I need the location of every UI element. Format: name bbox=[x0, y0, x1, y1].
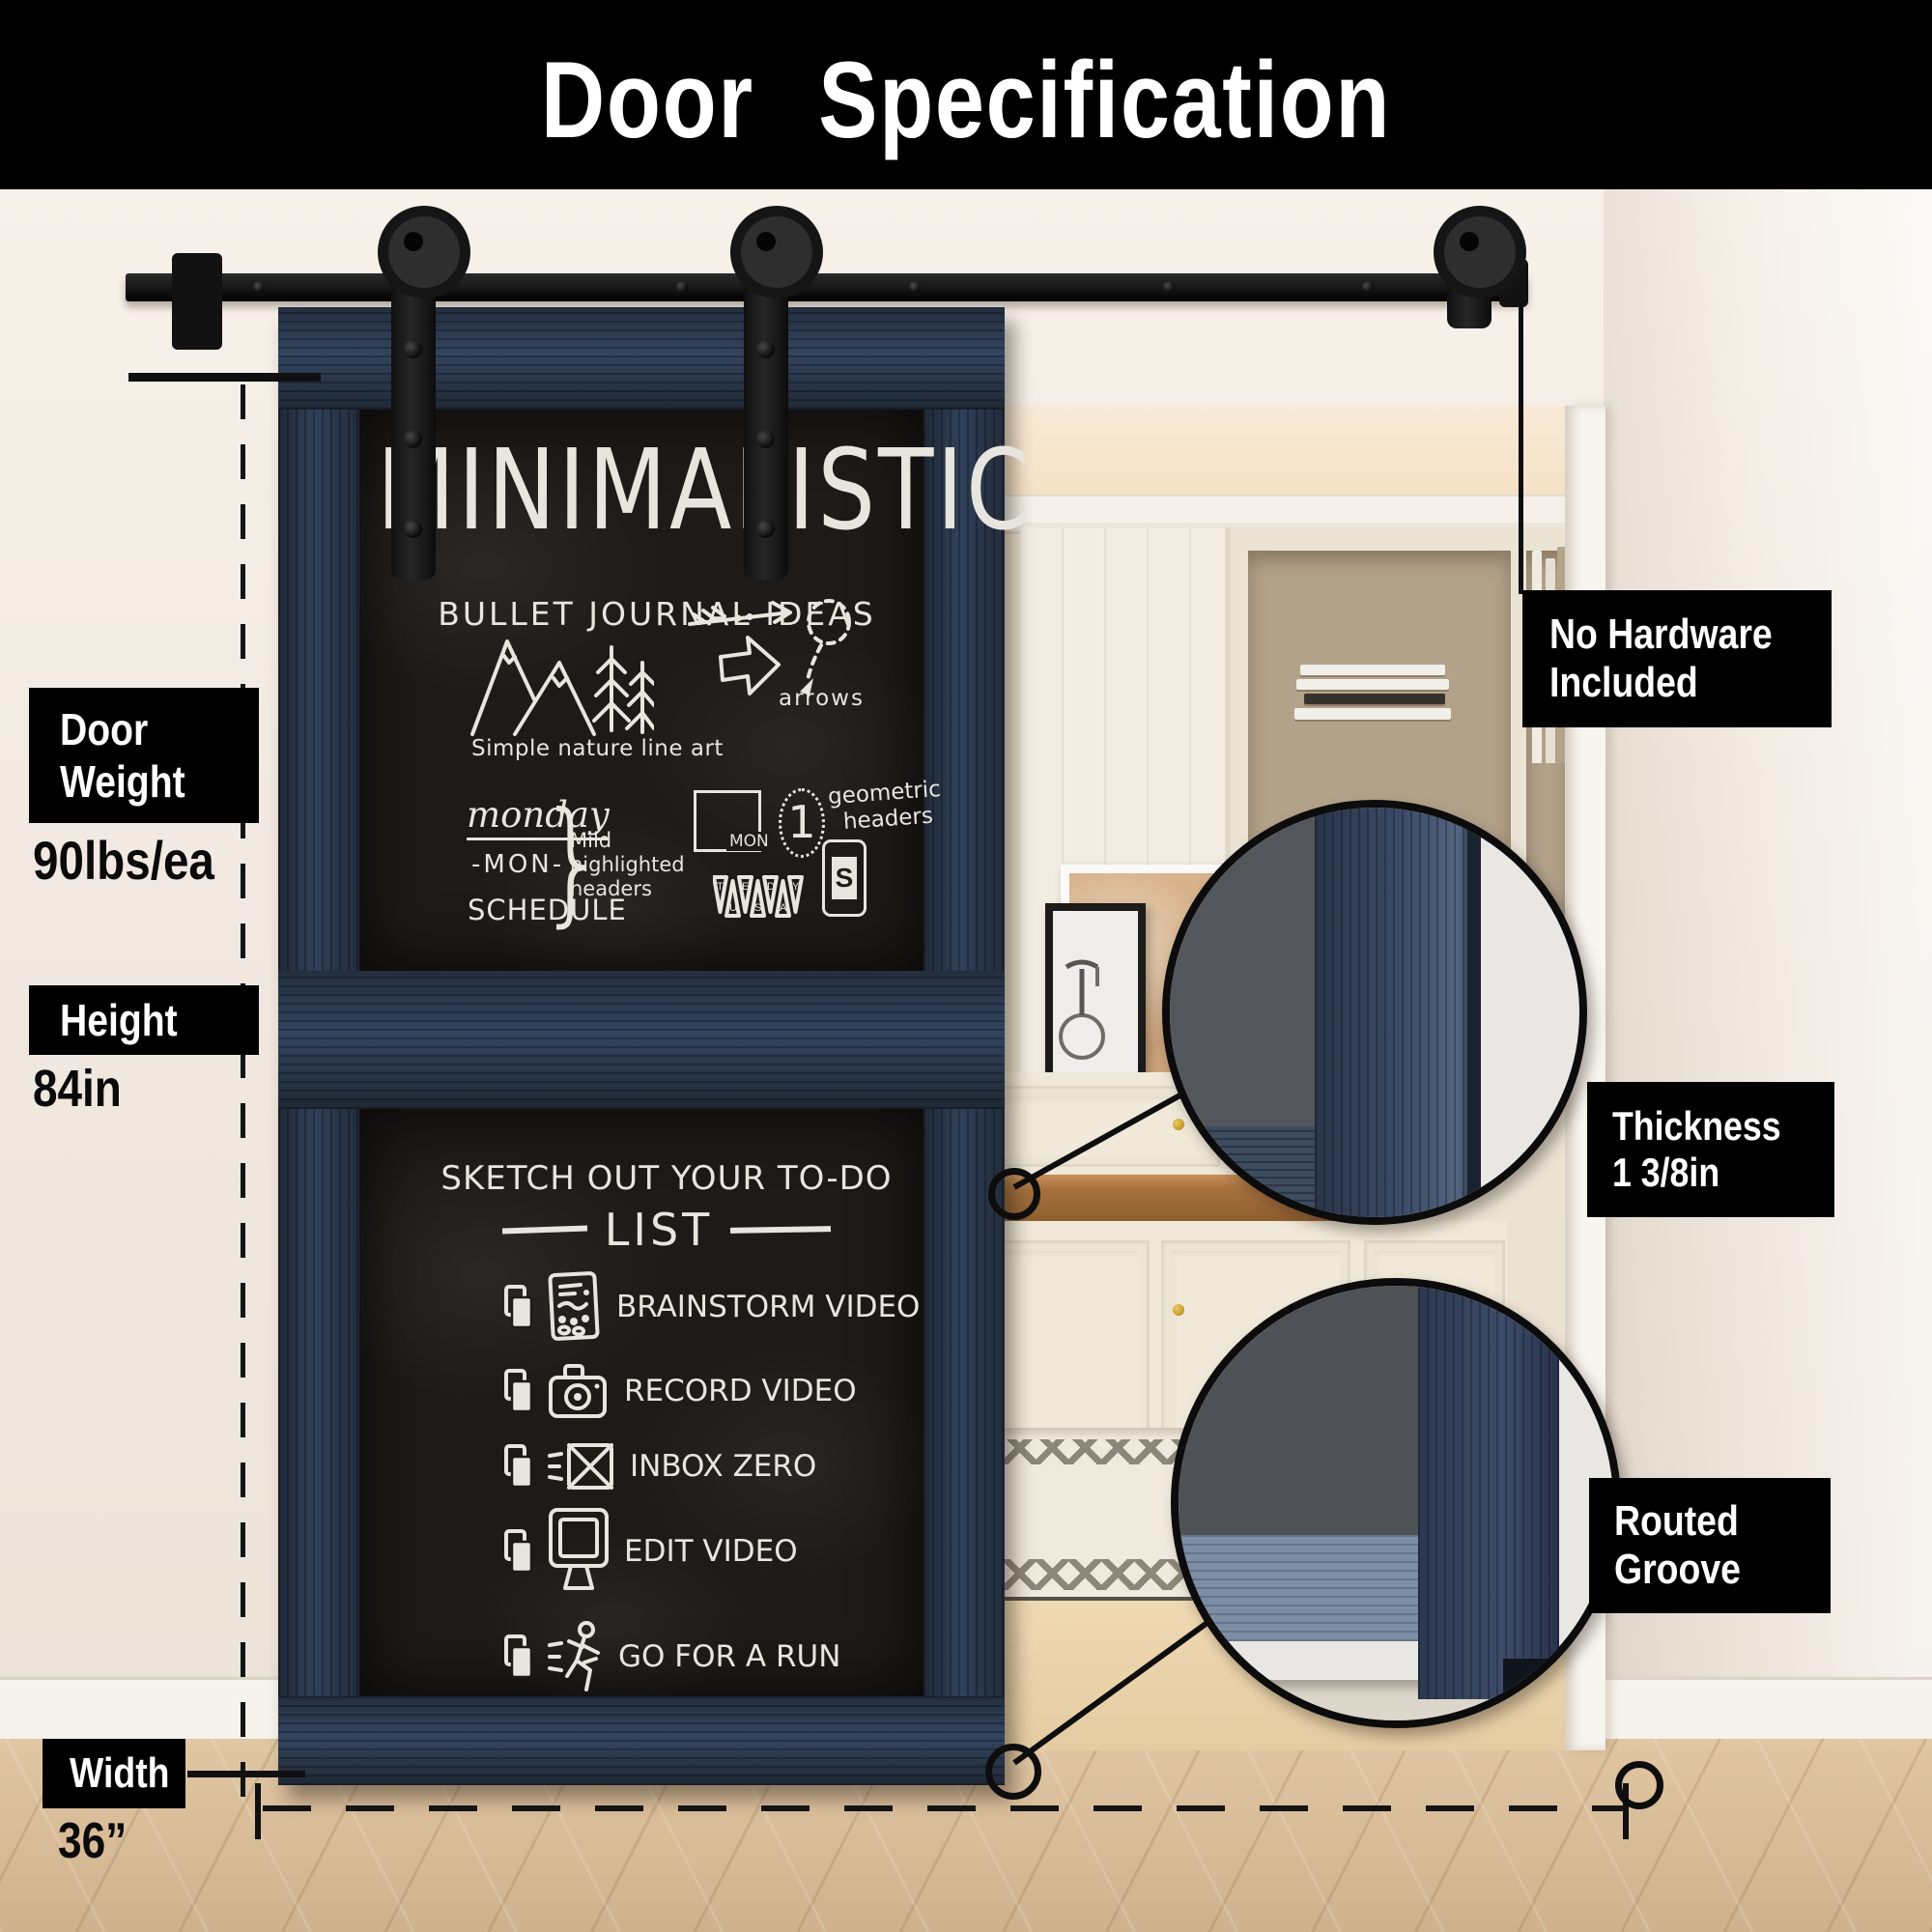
todo-row: RECORD VIDEO bbox=[504, 1354, 857, 1428]
brace-note-line: highlighted bbox=[570, 853, 685, 877]
brace-note: Mild highlighted headers bbox=[570, 829, 685, 901]
strap-bolt bbox=[756, 520, 775, 538]
todo-row: EDIT VIDEO bbox=[504, 1503, 798, 1600]
closeup-door-face-bottom bbox=[1179, 1535, 1420, 1641]
closeup-door-edge bbox=[1418, 1286, 1559, 1699]
dash-line bbox=[730, 1226, 831, 1234]
page-title: Door Specification bbox=[174, 0, 1758, 201]
monitor-icon bbox=[548, 1507, 610, 1596]
strap-bolt bbox=[756, 430, 775, 448]
strap-bolt bbox=[404, 340, 422, 358]
rail-bolt bbox=[1163, 281, 1175, 293]
height-top-tick bbox=[128, 373, 321, 382]
nature-caption: Simple nature line art bbox=[471, 736, 724, 761]
pennant-banner: T U E S D A Y bbox=[713, 873, 808, 922]
checkbox-icon bbox=[504, 1285, 533, 1329]
book bbox=[1300, 665, 1445, 675]
wheel-axle bbox=[404, 232, 423, 251]
width-left-tick bbox=[255, 1783, 261, 1839]
no-hardware-line: No Hardware bbox=[1549, 611, 1789, 659]
brainstorm-note-icon bbox=[548, 1269, 602, 1345]
routed-groove-notch bbox=[1503, 1659, 1559, 1699]
todo-title: SKETCH OUT YOUR TO-DO bbox=[396, 1159, 937, 1198]
routed-groove-line: Routed bbox=[1614, 1497, 1798, 1546]
geometric-caption: geometric headers bbox=[827, 777, 943, 837]
routed-groove-line: Groove bbox=[1614, 1546, 1798, 1594]
wheel-axle bbox=[1460, 232, 1479, 251]
thickness-label: Thickness 1 3/8in bbox=[1587, 1082, 1834, 1217]
height-value: 84in bbox=[33, 1059, 122, 1119]
camera-icon bbox=[548, 1361, 610, 1421]
pennant-letter: S bbox=[754, 902, 761, 914]
brace-note-line: Mild bbox=[570, 829, 685, 853]
door-mid-rail bbox=[278, 971, 1005, 1109]
pennant-letter: T bbox=[717, 881, 724, 893]
checkbox-icon bbox=[504, 1369, 533, 1413]
todo-item-label: BRAINSTORM VIDEO bbox=[616, 1290, 920, 1324]
closeup-door-face bbox=[1170, 1126, 1324, 1217]
track-rail bbox=[126, 273, 1528, 301]
height-label: Height bbox=[29, 985, 259, 1055]
rail-end-stop-left bbox=[172, 253, 222, 350]
s-badge-inner: S bbox=[832, 857, 857, 899]
door-weight-line: Weight bbox=[60, 755, 229, 808]
todo-item-label: EDIT VIDEO bbox=[624, 1534, 798, 1569]
door-weight-value: 90lbs/ea bbox=[33, 829, 214, 892]
rail-bolt bbox=[253, 281, 265, 293]
dotted-circle-number: 1 bbox=[787, 796, 815, 848]
book bbox=[1296, 679, 1449, 690]
groove-detail-circle bbox=[1171, 1278, 1621, 1728]
mountains-doodle bbox=[470, 630, 654, 738]
bicycle-drawing bbox=[1053, 911, 1122, 1085]
dotted-circle-doodle: 1 bbox=[779, 788, 825, 858]
runner-icon bbox=[548, 1618, 604, 1695]
checkbox-icon bbox=[504, 1444, 533, 1489]
anchor-circle bbox=[988, 1168, 1040, 1220]
book bbox=[1294, 708, 1451, 720]
todo-row: INBOX ZERO bbox=[504, 1432, 816, 1501]
thickness-detail-circle bbox=[1162, 800, 1587, 1225]
todo-row: GO FOR A RUN bbox=[504, 1615, 840, 1698]
roller-wheel-icon bbox=[378, 206, 470, 298]
width-label-connector bbox=[187, 1771, 305, 1777]
todo-item-label: GO FOR A RUN bbox=[618, 1639, 840, 1674]
rail-bolt bbox=[909, 281, 921, 293]
rect-doodle-label: MON bbox=[726, 832, 772, 851]
anchor-circle bbox=[1615, 1761, 1663, 1809]
door-bottom-rail bbox=[278, 1696, 1005, 1785]
roller-wheel-icon bbox=[730, 206, 823, 298]
no-hardware-line: Included bbox=[1549, 659, 1789, 707]
arrows-caption: arrows bbox=[779, 686, 865, 711]
closeup-door-edge bbox=[1315, 808, 1471, 1217]
inbox-zero-icon bbox=[548, 1440, 615, 1492]
title-banner: Door Specification bbox=[0, 0, 1932, 189]
thickness-line: Thickness bbox=[1612, 1103, 1802, 1150]
product-spec-image: MINIMALISTIC BULLET JOURNAL IDEAS Simple… bbox=[0, 0, 1932, 1932]
height-dimension-line bbox=[241, 384, 245, 1803]
routed-groove-label: Routed Groove bbox=[1589, 1478, 1831, 1613]
strap-bolt bbox=[404, 520, 422, 538]
rail-bolt bbox=[676, 281, 688, 293]
todo-list-word: LIST bbox=[605, 1204, 714, 1256]
pennant-letter: E bbox=[742, 881, 749, 893]
brace-note-line: headers bbox=[570, 877, 685, 901]
anchor-circle bbox=[985, 1744, 1041, 1800]
no-hardware-label: No Hardware Included bbox=[1522, 590, 1832, 727]
width-dimension-line bbox=[263, 1805, 1625, 1811]
s-badge: S bbox=[822, 839, 867, 917]
board-title: MINIMALISTIC bbox=[377, 427, 937, 555]
pennant-letter: Y bbox=[792, 881, 800, 893]
roller-wheel-icon bbox=[1434, 206, 1526, 298]
leader-line-hardware bbox=[1519, 300, 1523, 594]
strap-bolt bbox=[756, 340, 775, 358]
width-label: Width bbox=[43, 1739, 185, 1808]
height-label-text: Height bbox=[60, 994, 178, 1046]
dash-line bbox=[502, 1225, 587, 1234]
todo-list-heading: LIST bbox=[396, 1204, 937, 1256]
pennant-letter: U bbox=[729, 902, 737, 914]
todo-row: BRAINSTORM VIDEO bbox=[504, 1265, 920, 1349]
ceiling-glow bbox=[966, 406, 1565, 498]
width-label-text: Width bbox=[70, 1749, 170, 1798]
todo-item-label: RECORD VIDEO bbox=[624, 1374, 857, 1408]
width-value: 36” bbox=[58, 1812, 127, 1870]
wheel-axle bbox=[756, 232, 776, 251]
closeup-shadow-wall bbox=[1179, 1286, 1420, 1535]
rail-bolt bbox=[1362, 281, 1374, 293]
pennant-letter: D bbox=[767, 881, 775, 893]
door-top-rail bbox=[278, 307, 1005, 410]
checkbox-icon bbox=[504, 1529, 533, 1574]
book bbox=[1304, 694, 1445, 704]
todo-item-label: INBOX ZERO bbox=[630, 1449, 816, 1484]
door-weight-line: Door bbox=[60, 703, 229, 755]
strap-bolt bbox=[404, 430, 422, 448]
closeup-edge-seam bbox=[1467, 808, 1481, 1217]
thickness-line: 1 3/8in bbox=[1612, 1150, 1802, 1196]
pennant-letter: A bbox=[780, 902, 787, 914]
checkbox-icon bbox=[504, 1634, 533, 1679]
wall-shading bbox=[1604, 189, 1932, 1677]
door-weight-label: Door Weight bbox=[29, 688, 259, 823]
s-badge-letter: S bbox=[836, 863, 854, 894]
